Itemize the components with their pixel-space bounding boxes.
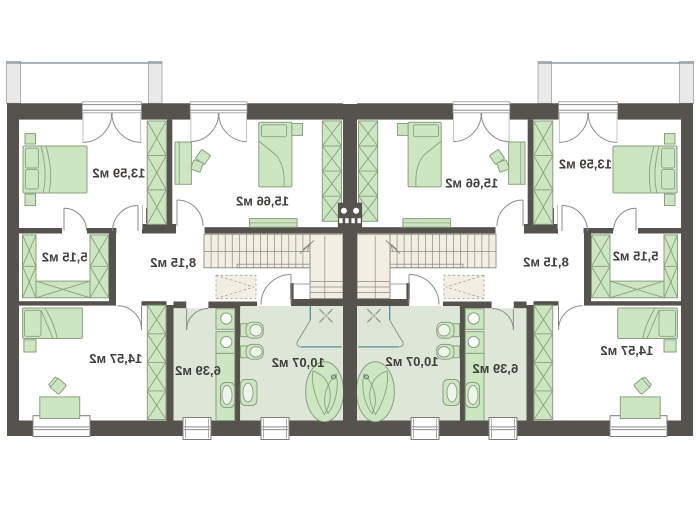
svg-text:6,39 м2: 6,39 м2 bbox=[175, 363, 221, 378]
svg-text:15,66 м2: 15,66 м2 bbox=[236, 193, 289, 208]
svg-text:8,15 м2: 8,15 м2 bbox=[150, 255, 196, 270]
svg-text:14,57 м2: 14,57 м2 bbox=[89, 351, 142, 366]
svg-text:10,07 м2: 10,07 м2 bbox=[386, 354, 439, 369]
svg-text:14,57 м2: 14,57 м2 bbox=[600, 343, 653, 358]
svg-text:5,15 м2: 5,15 м2 bbox=[42, 250, 88, 265]
svg-text:10,07 м2: 10,07 м2 bbox=[272, 355, 325, 370]
svg-text:15,66 м2: 15,66 м2 bbox=[445, 175, 498, 190]
svg-text:13,59 м2: 13,59 м2 bbox=[92, 165, 145, 180]
svg-text:13,59 м2: 13,59 м2 bbox=[559, 157, 612, 172]
svg-text:6,39 м2: 6,39 м2 bbox=[473, 361, 519, 376]
svg-text:8,15 м2: 8,15 м2 bbox=[523, 254, 569, 269]
svg-text:5,15 м2: 5,15 м2 bbox=[613, 249, 659, 264]
